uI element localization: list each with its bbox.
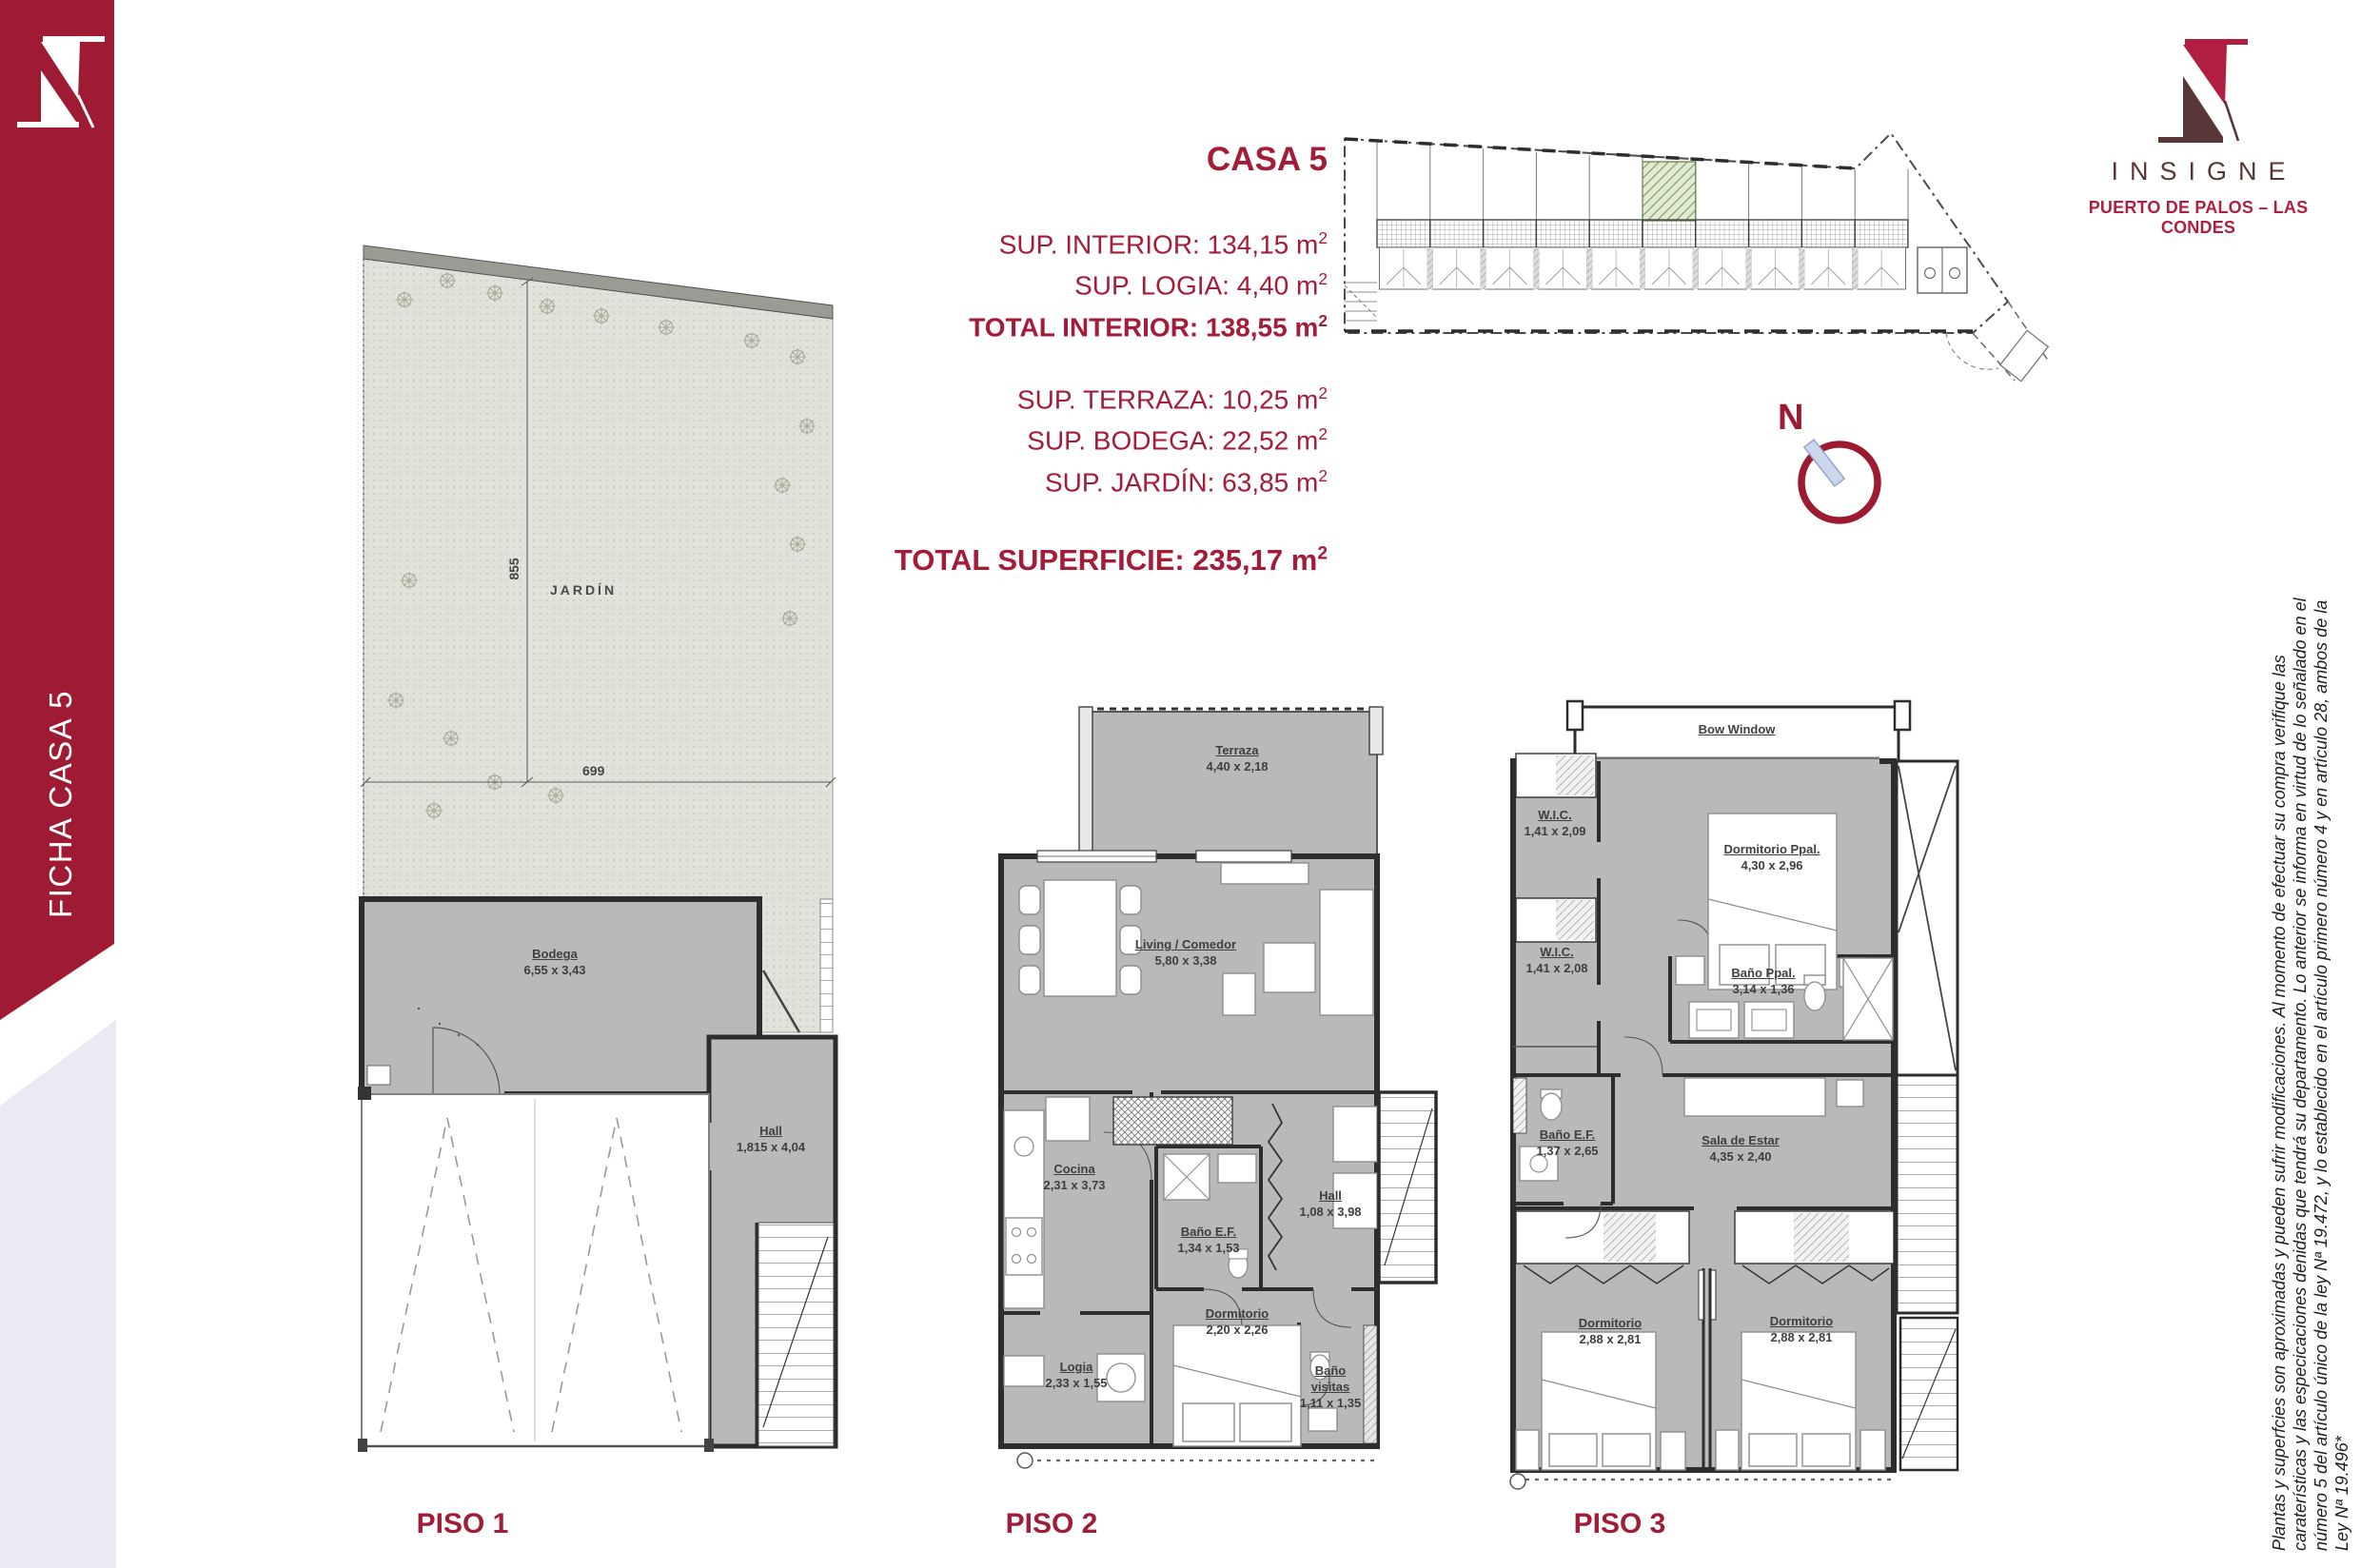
disclaimer-line: caraterísticas y las especicaciones deni…: [2290, 314, 2311, 1551]
piso3-plan: Bow Window W.I.C. 1,41 x 2,09 Dormitorio…: [1508, 699, 1970, 1503]
piso2-label: PISO 2: [1006, 1508, 1098, 1540]
room-label-living: Living / Comedor 5,80 x 3,38: [1135, 937, 1236, 970]
piso1-plan: JARDÍN 855 699 Bodega 6,55 x 3,43 Hall 1…: [352, 171, 852, 1489]
room-label-bodega: Bodega 6,55 x 3,43: [523, 947, 585, 979]
room-label-bow-window: Bow Window: [1699, 722, 1776, 738]
room-label-sala: Sala de Estar 4,35 x 2,40: [1702, 1133, 1780, 1166]
piso3-label: PISO 3: [1574, 1508, 1666, 1540]
siteplan-highlight-casa5: [1643, 162, 1696, 221]
sidebar-logo-n-icon: [17, 21, 105, 133]
piso1-drawing: [352, 171, 852, 1489]
room-label-dorm-b: Dormitorio 2,88 x 2,81: [1770, 1314, 1833, 1346]
room-label-cocina: Cocina 2,31 x 3,73: [1043, 1162, 1105, 1194]
room-label-hall-p2: Hall 1,08 x 3,98: [1299, 1188, 1361, 1221]
ficha-page: FICHA CASA 5 CASA 5 SUP. INTERIOR: 134,1…: [0, 0, 2361, 1568]
north-compass-icon: [1789, 433, 1894, 538]
legal-disclaimer: Plantas y superfcies son aproximadas y p…: [2269, 314, 2352, 1551]
room-label-bano-visitas: Baño visitas 1,11 x 1,35: [1299, 1363, 1362, 1412]
brand-location: PUERTO DE PALOS – LAS CONDES: [2056, 198, 2341, 238]
disclaimer-line: Plantas y superfcies son aproximadas y p…: [2269, 314, 2290, 1551]
room-label-dorm-a: Dormitorio 2,88 x 2,81: [1579, 1316, 1642, 1348]
room-label-jardin: JARDÍN: [550, 582, 617, 598]
room-label-bano-ppal: Baño Ppal. 3,14 x 1,36: [1731, 966, 1795, 998]
dim-699: 699: [582, 763, 604, 778]
brand-wordmark: INSIGNE: [2075, 157, 2322, 186]
piso1-label: PISO 1: [417, 1508, 509, 1540]
room-label-terraza: Terraza 4,40 x 2,18: [1206, 743, 1268, 775]
piso2-plan: Terraza 4,40 x 2,18 Living / Comedor 5,8…: [985, 699, 1442, 1489]
disclaimer-line: número 5 del artículo único de la ley Nª…: [2311, 314, 2331, 1551]
dim-855: 855: [506, 558, 521, 579]
siteplan-drawing: [1337, 78, 2070, 392]
room-label-dorm-ppal: Dormitorio Ppal. 4,30 x 2,96: [1723, 842, 1820, 874]
sidebar-title: FICHA CASA 5: [43, 690, 79, 918]
room-label-bano-ef-p2: Baño E.F. 1,34 x 1,53: [1177, 1225, 1239, 1257]
room-label-bano-ef-p3: Baño E.F. 1,37 x 2,65: [1536, 1127, 1598, 1160]
disclaimer-line: Ley Nª 19.496*: [2331, 314, 2352, 1551]
room-label-wic1: W.I.C. 1,41 x 2,09: [1524, 808, 1585, 840]
room-label-wic2: W.I.C. 1,41 x 2,08: [1525, 945, 1587, 977]
brand-logo-n-icon: [2156, 34, 2248, 143]
room-label-hall-p1: Hall 1,815 x 4,04: [737, 1124, 805, 1156]
room-label-logia: Logia 2,33 x 1,55: [1045, 1360, 1107, 1392]
room-label-dormitorio-p2: Dormitorio 2,20 x 2,26: [1206, 1306, 1269, 1339]
